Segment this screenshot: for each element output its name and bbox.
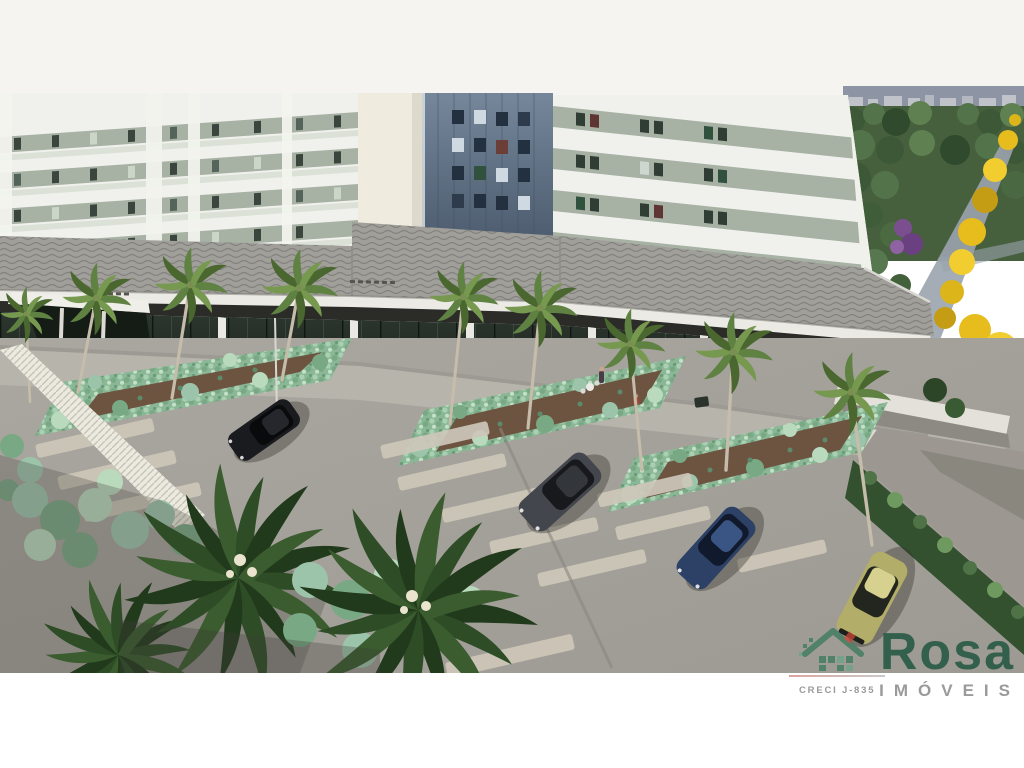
render-photo xyxy=(0,0,1024,673)
person-standing xyxy=(599,371,604,383)
center-tower xyxy=(358,93,553,246)
brand-type-label: IMÓVEIS xyxy=(879,682,1020,699)
rosa-house-icon xyxy=(797,624,877,672)
architectural-render: Rosa IMÓVEIS CRECI J-835 xyxy=(0,0,1024,768)
brand-wordmark: Rosa xyxy=(880,626,1015,678)
cafe-table xyxy=(586,383,594,391)
center-tower-glass-core xyxy=(422,93,553,238)
watermark-divider xyxy=(789,675,885,677)
planter xyxy=(694,396,709,408)
license-label: CRECI J-835 xyxy=(799,686,875,696)
